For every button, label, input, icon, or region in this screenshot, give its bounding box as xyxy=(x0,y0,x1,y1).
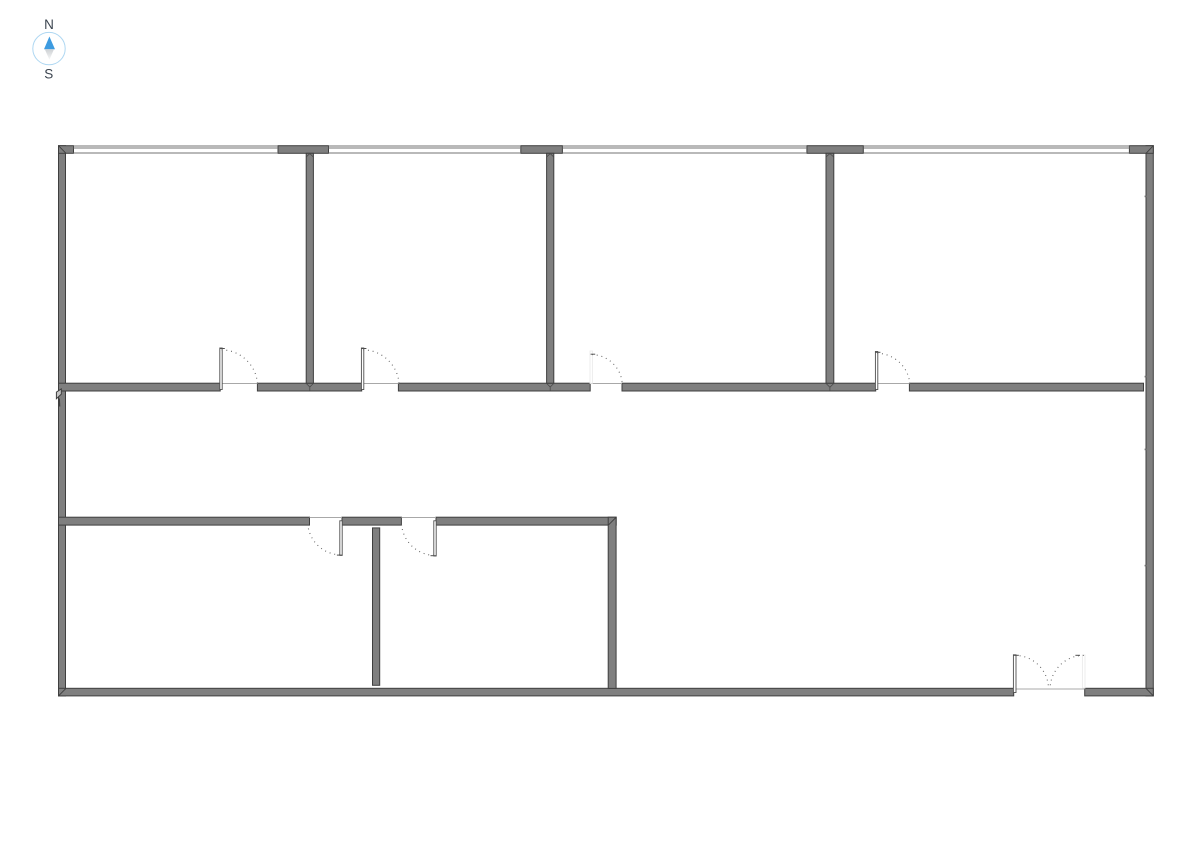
svg-text:S: S xyxy=(44,67,53,82)
svg-text:N: N xyxy=(44,17,54,32)
